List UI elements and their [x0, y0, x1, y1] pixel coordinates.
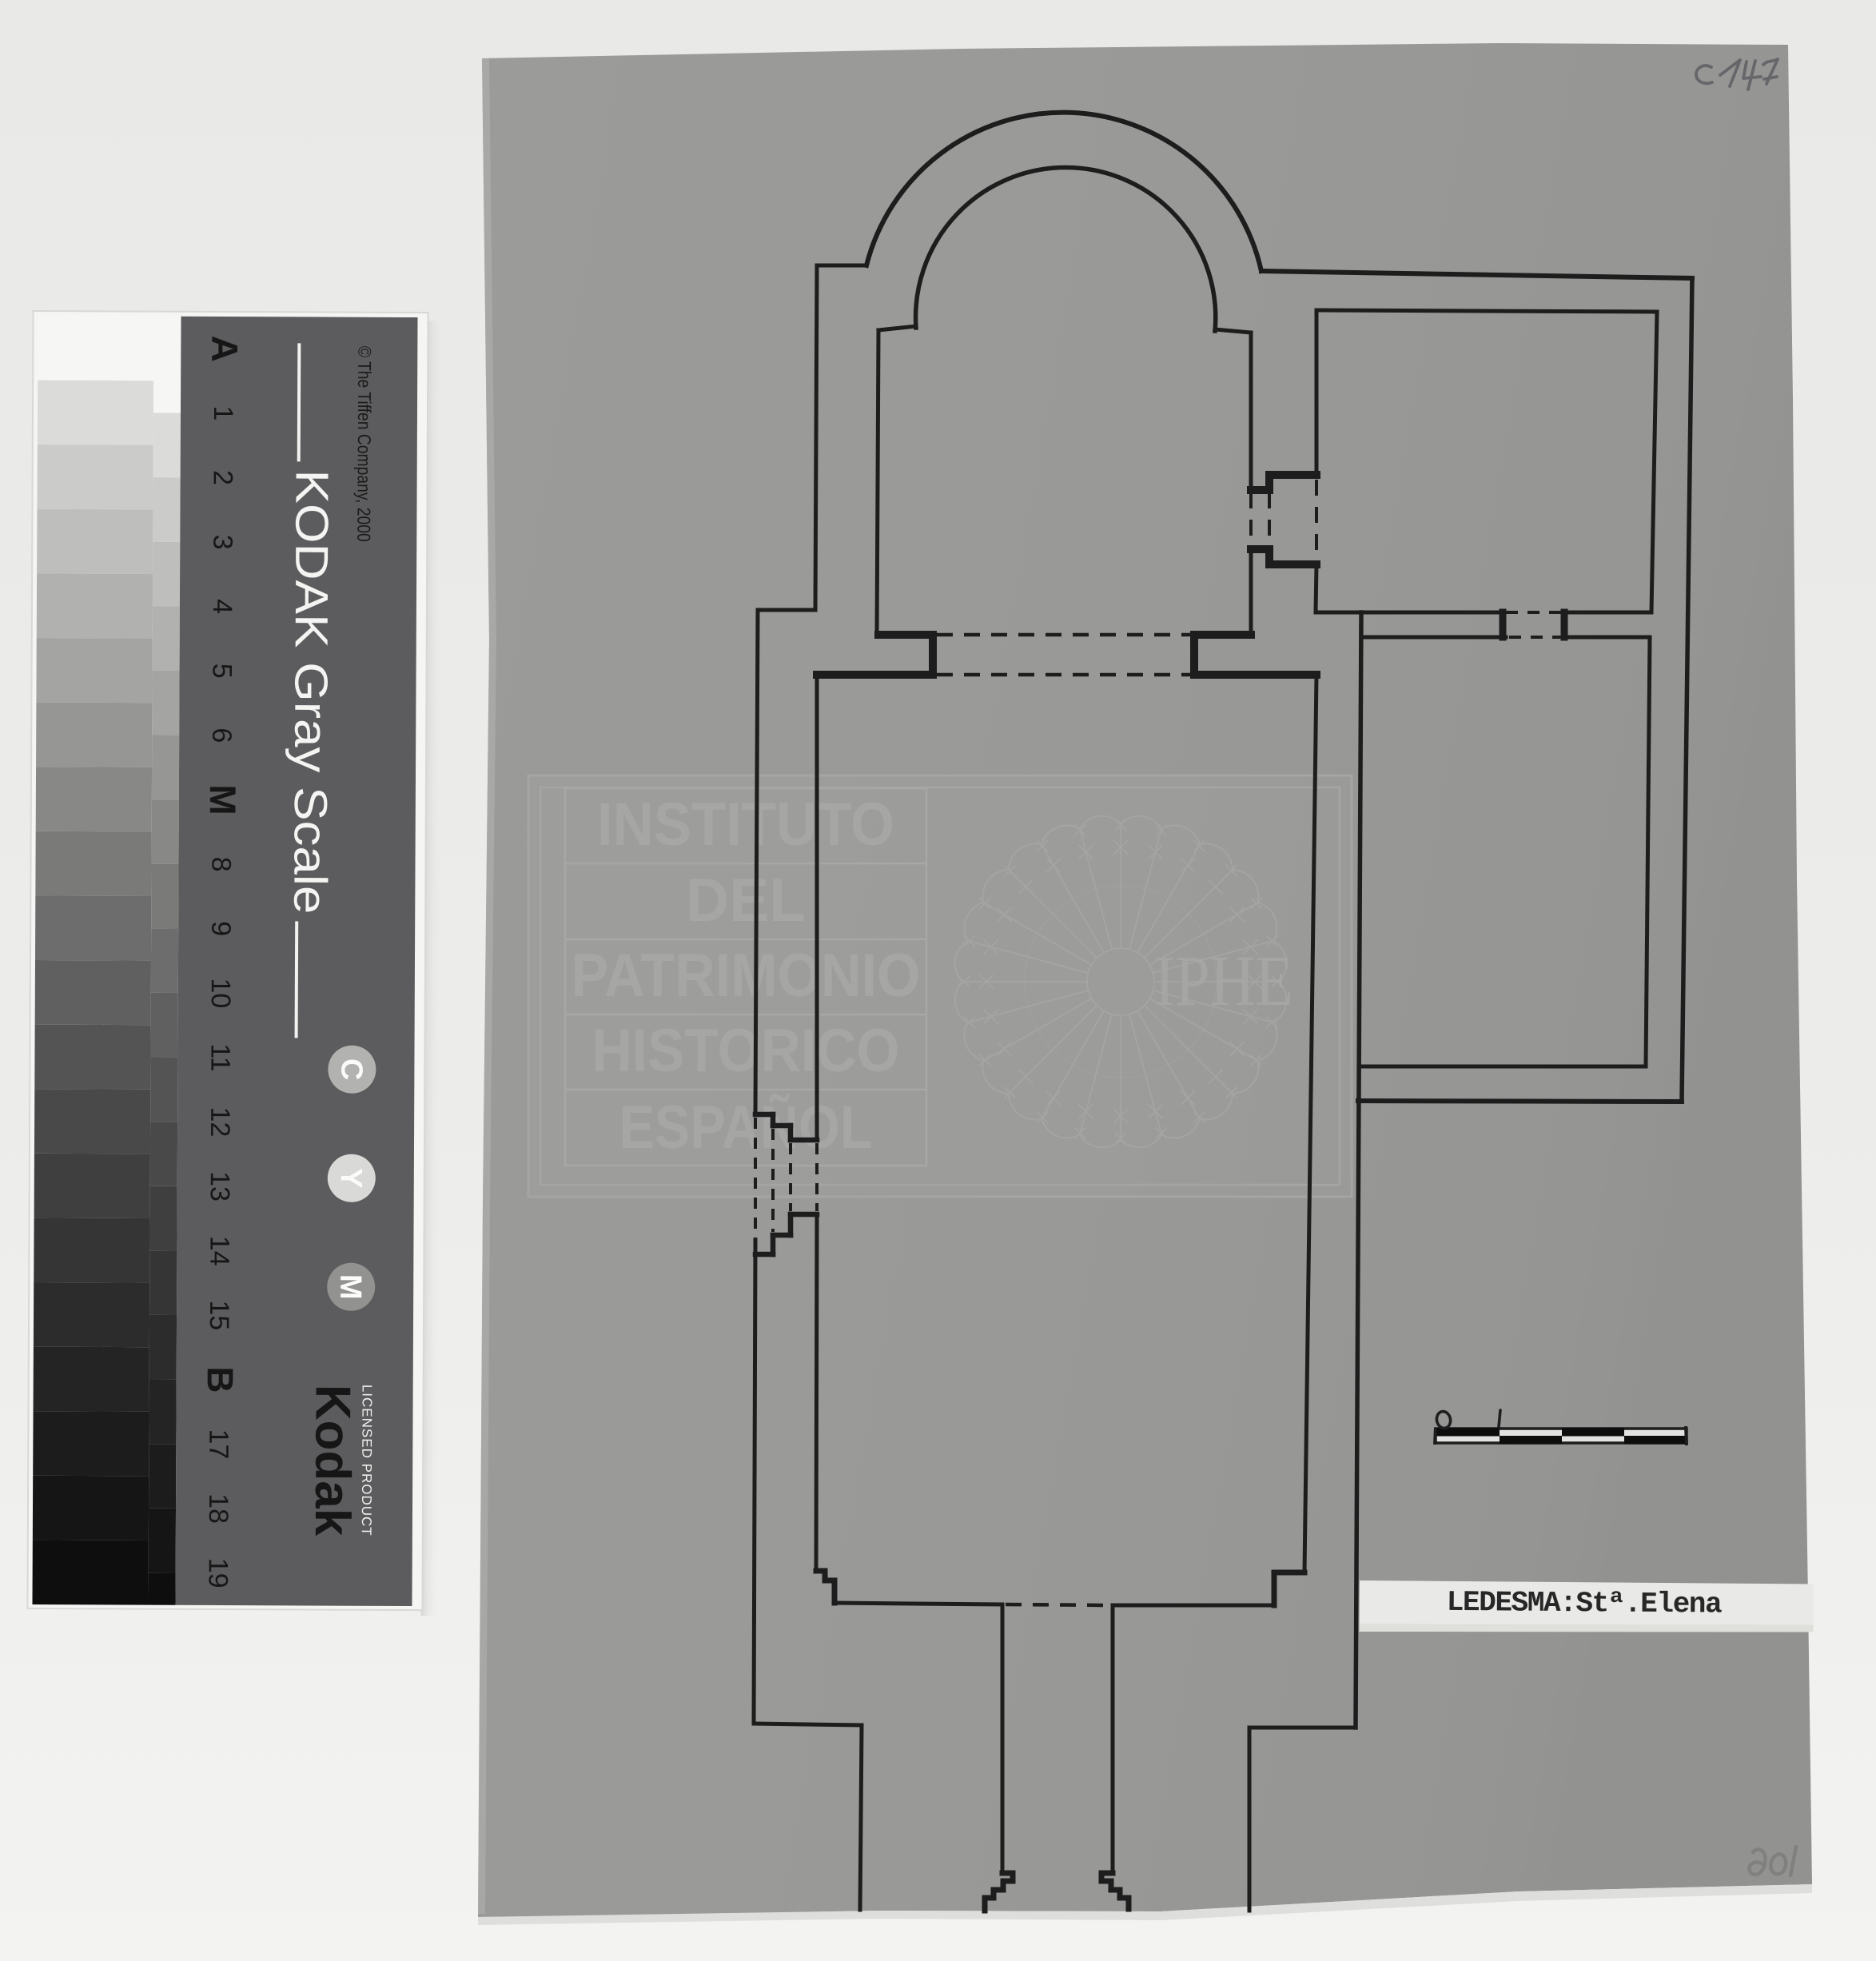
svg-text:17: 17 [203, 1429, 233, 1459]
svg-text:9: 9 [205, 921, 236, 936]
svg-text:KODAK Gray Scale: KODAK Gray Scale [284, 469, 337, 914]
svg-text:DEL: DEL [686, 867, 806, 935]
svg-text:Kodak: Kodak [305, 1385, 360, 1537]
svg-text:13: 13 [205, 1171, 235, 1202]
svg-text:5: 5 [207, 664, 237, 679]
svg-text:1: 1 [208, 405, 238, 420]
svg-text:12: 12 [205, 1106, 235, 1137]
svg-text:3: 3 [207, 535, 237, 550]
svg-text:M: M [333, 1274, 367, 1300]
svg-text:ESPAÑOL: ESPAÑOL [619, 1094, 873, 1162]
svg-text:C: C [334, 1058, 368, 1081]
svg-text:LICENSED PRODUCT: LICENSED PRODUCT [359, 1385, 375, 1537]
svg-text:11: 11 [205, 1043, 235, 1071]
svg-text:Y: Y [334, 1168, 368, 1189]
svg-text:8: 8 [205, 857, 236, 872]
svg-text:© The Tiffen Company, 2000: © The Tiffen Company, 2000 [353, 346, 375, 542]
svg-text:IPHE: IPHE [1154, 942, 1293, 1021]
svg-text:PATRIMONIO: PATRIMONIO [572, 942, 921, 1010]
svg-text:M: M [202, 784, 244, 815]
svg-text:6: 6 [206, 727, 237, 743]
svg-text:19: 19 [203, 1558, 233, 1588]
svg-text:INSTITUTO: INSTITUTO [597, 791, 894, 859]
svg-text:10: 10 [205, 978, 236, 1008]
svg-text:14: 14 [204, 1236, 234, 1266]
svg-text:LEDESMA:Stª.Elena: LEDESMA:Stª.Elena [1447, 1586, 1723, 1621]
svg-text:4: 4 [207, 599, 237, 614]
svg-text:B: B [200, 1366, 241, 1393]
svg-text:2: 2 [208, 470, 238, 485]
svg-text:HISTORICO: HISTORICO [592, 1017, 900, 1085]
svg-text:18: 18 [203, 1493, 233, 1524]
svg-text:A: A [204, 336, 245, 362]
svg-text:15: 15 [204, 1300, 234, 1330]
